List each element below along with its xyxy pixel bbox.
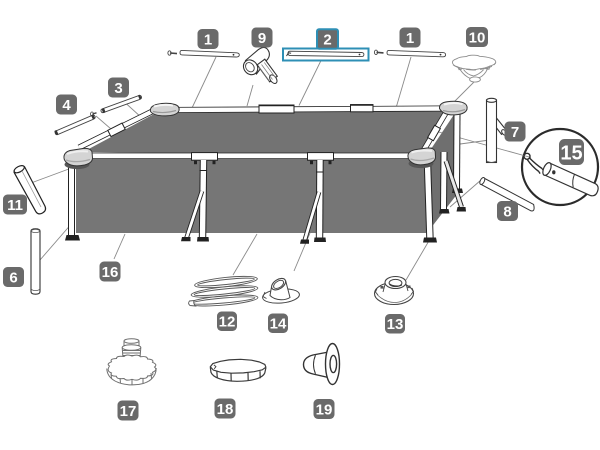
svg-text:17: 17	[120, 403, 137, 420]
svg-text:1: 1	[204, 31, 212, 48]
svg-text:16: 16	[102, 264, 119, 281]
svg-text:8: 8	[503, 203, 511, 220]
svg-text:7: 7	[511, 124, 519, 141]
svg-text:6: 6	[9, 269, 17, 286]
svg-text:11: 11	[7, 197, 23, 214]
svg-text:15: 15	[560, 143, 582, 165]
svg-text:4: 4	[62, 97, 71, 114]
svg-text:1: 1	[406, 30, 414, 47]
svg-text:2: 2	[323, 31, 331, 48]
svg-text:14: 14	[270, 316, 287, 333]
svg-text:10: 10	[469, 29, 486, 46]
svg-text:3: 3	[114, 80, 122, 97]
svg-text:18: 18	[217, 401, 234, 418]
svg-text:12: 12	[219, 314, 236, 331]
svg-text:19: 19	[316, 401, 333, 418]
svg-text:9: 9	[258, 30, 266, 47]
svg-text:13: 13	[387, 316, 404, 333]
